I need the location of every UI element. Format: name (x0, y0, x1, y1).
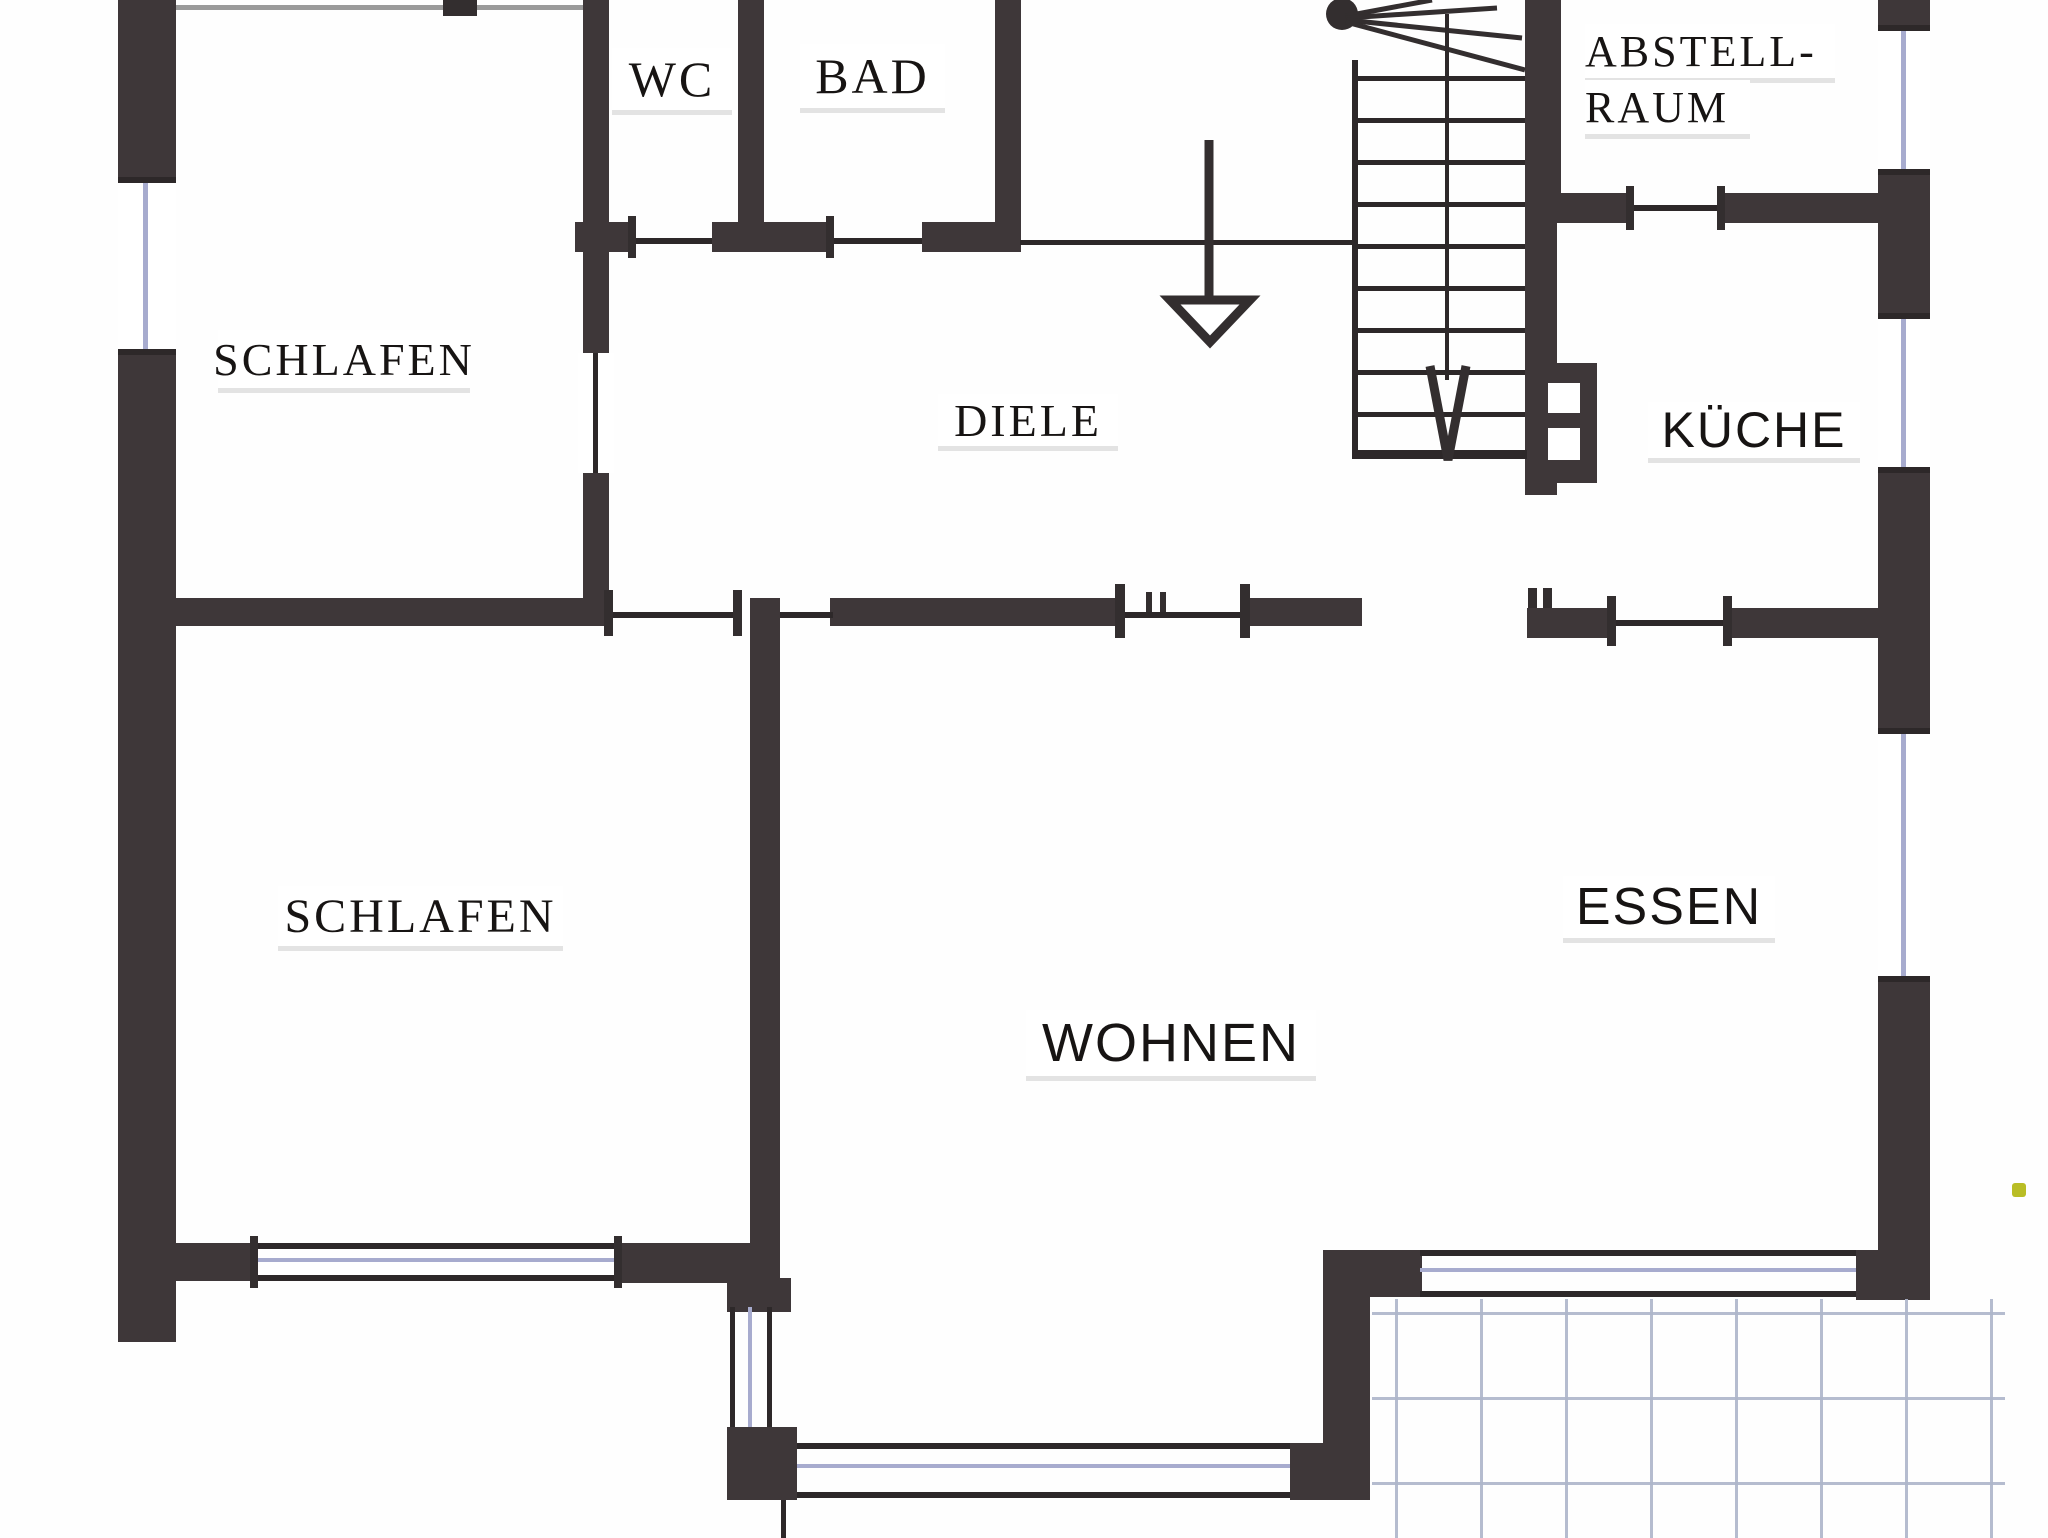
room-label-wohnen: WOHNEN (1026, 1010, 1316, 1076)
wall-segment (1250, 598, 1362, 626)
stair-down-arrow-icon (1426, 362, 1470, 467)
room-label-schlafen-bottom: SCHLAFEN (278, 886, 563, 946)
window-edge (118, 349, 176, 355)
room-label-schlafen-top: SCHLAFEN (218, 330, 470, 388)
window-glazing (1901, 734, 1906, 976)
room-label-abstellraum-line1: ABSTELL- (1585, 24, 1835, 78)
wall-corner (727, 1278, 791, 1312)
wall-segment (712, 222, 832, 252)
stair-walk-line (1445, 14, 1449, 380)
window-edge (730, 1307, 735, 1429)
window-glazing (1901, 31, 1906, 169)
door-line (1120, 612, 1250, 618)
wall-schlafen-diele (583, 0, 609, 600)
window-edge (797, 1443, 1290, 1449)
window-edge (258, 1275, 620, 1281)
window-edge (258, 1243, 620, 1249)
terrace-tiles (1372, 1299, 2005, 1538)
window-glazing (748, 1307, 752, 1429)
door-jamb (1723, 596, 1732, 646)
window-edge (1878, 467, 1930, 473)
scan-artifact-dot (2012, 1183, 2026, 1197)
chimney-vent (1548, 383, 1580, 413)
door-hinge-mark (1160, 592, 1166, 612)
window-edge (1420, 1291, 1860, 1297)
door-hinge-mark (1146, 592, 1152, 612)
window-edge (1420, 1250, 1860, 1256)
window-glazing (1901, 319, 1906, 467)
wall-segment (575, 222, 635, 252)
window-glazing (1420, 1268, 1860, 1272)
chimney-block (1527, 363, 1597, 483)
wall-schlafen-wohnen (750, 598, 780, 1290)
wall-segment (130, 598, 610, 626)
door-jamb (1607, 596, 1616, 646)
scan-line (781, 1500, 786, 1538)
room-label-wc: WC (612, 48, 732, 110)
door-jamb (1717, 186, 1725, 230)
wall-segment (620, 1243, 752, 1283)
door-line (593, 353, 598, 473)
door-jamb (628, 216, 636, 258)
floor-plan: WC BAD ABSTELL- RAUM SCHLAFEN DIELE KÜCH… (0, 0, 2048, 1538)
window-edge (797, 1492, 1290, 1498)
room-label-diele: DIELE (938, 394, 1118, 446)
wall-segment (1550, 193, 1632, 223)
stair-tread (1358, 286, 1525, 291)
cut-wall-stub (443, 0, 477, 16)
entrance-arrow-icon (1160, 132, 1260, 347)
wall-segment (830, 598, 1120, 626)
door-jamb (604, 590, 613, 636)
door-line (610, 612, 740, 618)
room-label-abstellraum-line2: RAUM (1585, 80, 1750, 134)
wall-segment (922, 222, 1021, 252)
stair-tread (1358, 244, 1525, 249)
window-glazing (143, 183, 148, 349)
room-label-essen: ESSEN (1563, 876, 1775, 938)
room-label-bad: BAD (800, 44, 945, 108)
cut-edge-line (175, 5, 605, 10)
stair-tread (1358, 328, 1525, 333)
stair-tread (1358, 118, 1525, 123)
door-jamb (1240, 584, 1250, 638)
wall-bad-right (995, 0, 1021, 240)
window-edge (767, 1307, 772, 1429)
window-glazing (797, 1464, 1290, 1468)
door-jamb (250, 1236, 258, 1288)
window-glazing (258, 1258, 620, 1262)
wall-corner (1856, 1250, 1930, 1300)
room-label-kueche: KÜCHE (1648, 402, 1860, 458)
wall-corner (727, 1427, 797, 1500)
wall-segment (1730, 608, 1878, 638)
wall-wc-bad (738, 0, 764, 240)
wall-abstell-left (1537, 0, 1561, 222)
window-edge (1878, 169, 1930, 175)
wall-segment (1527, 608, 1613, 638)
stair-tread (1358, 160, 1525, 165)
stair-winder-icon (1322, 0, 1532, 85)
stair-tread (1358, 202, 1525, 207)
door-jamb (614, 1236, 622, 1288)
door-jamb (826, 216, 834, 258)
door-jamb (1626, 186, 1634, 230)
door-jamb (733, 590, 742, 636)
outer-wall-right (1878, 0, 1930, 1300)
door-jamb (1115, 584, 1125, 638)
chimney-vent (1548, 428, 1580, 460)
wall-segment (130, 1243, 258, 1281)
window-edge (1878, 976, 1930, 982)
wall-segment (1725, 193, 1878, 223)
door-line (778, 612, 833, 618)
wall-segment (1330, 1250, 1422, 1297)
